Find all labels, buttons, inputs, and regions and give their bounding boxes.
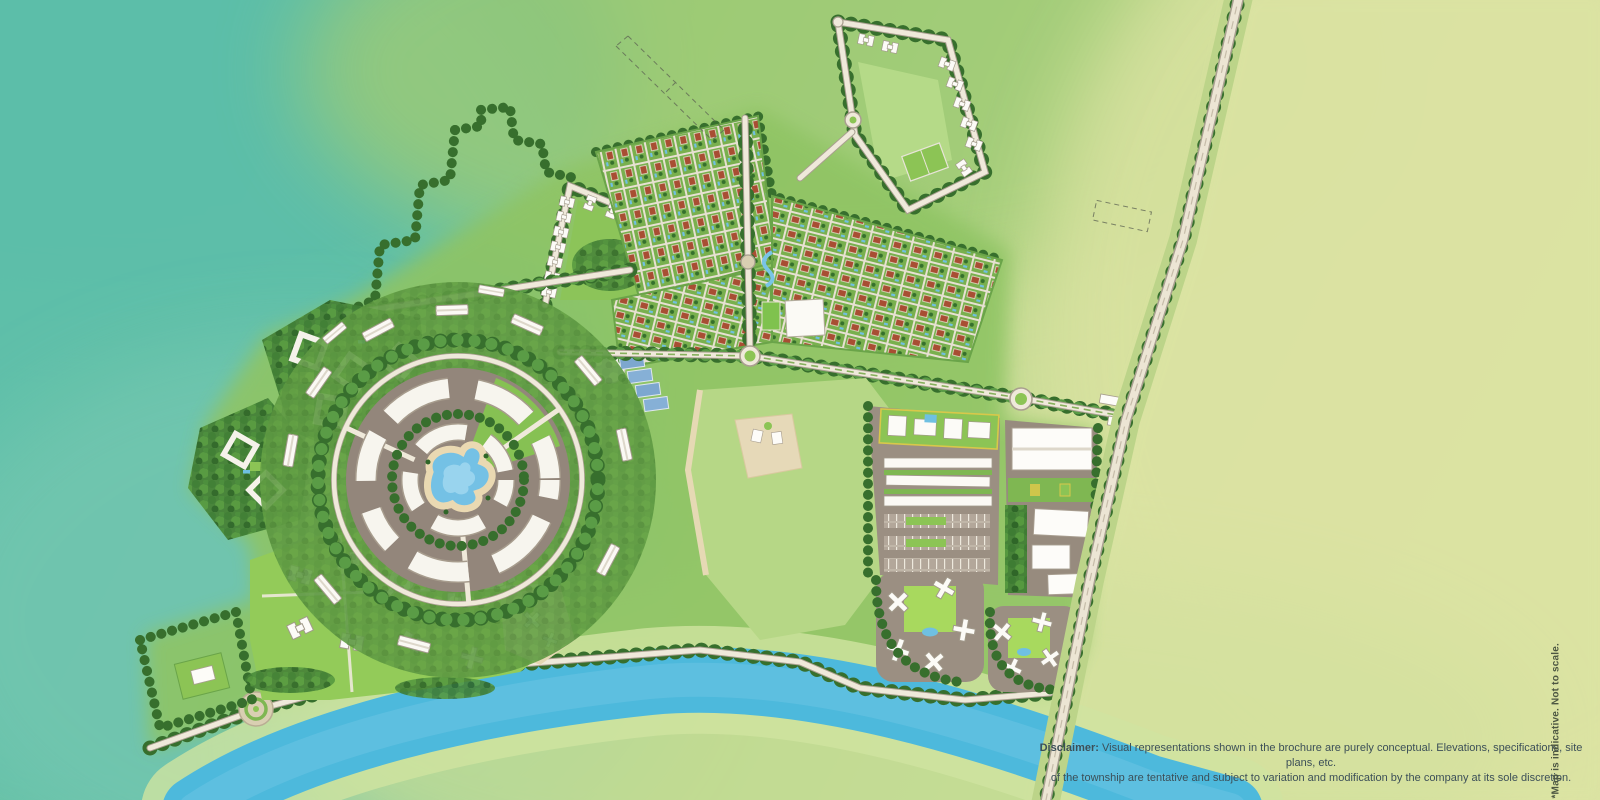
disclaimer: Disclaimer: Visual representations shown… bbox=[1028, 741, 1594, 786]
disclaimer-line2: of the township are tentative and subjec… bbox=[1051, 772, 1571, 784]
disclaimer-line1: Visual representations shown in the broc… bbox=[1102, 742, 1582, 769]
central-hub bbox=[260, 282, 656, 678]
township-masterplan-map: Disclaimer: Visual representations shown… bbox=[0, 0, 1600, 800]
institutional-campus bbox=[868, 406, 1000, 585]
masterplan-artwork bbox=[0, 0, 1600, 800]
disclaimer-label: Disclaimer: bbox=[1040, 742, 1099, 754]
roundabout-villa bbox=[741, 255, 755, 269]
x-tower-cluster-1 bbox=[876, 572, 984, 682]
map-indicative-note: *Map is indicative. Not to scale. bbox=[1551, 643, 1562, 799]
